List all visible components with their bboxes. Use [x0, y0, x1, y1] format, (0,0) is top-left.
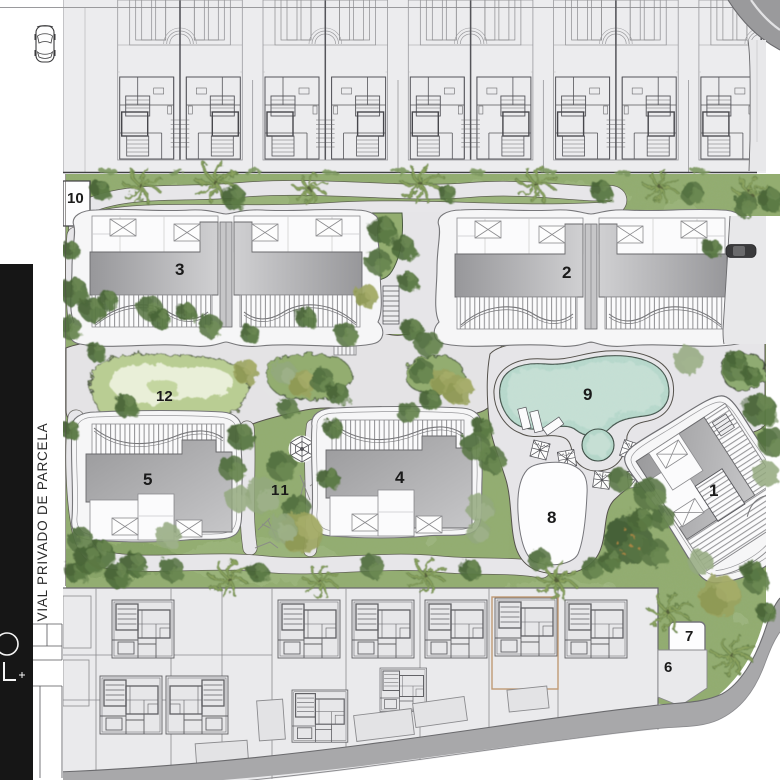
svg-text:4: 4	[395, 468, 405, 487]
svg-text:6: 6	[664, 659, 672, 676]
svg-text:2: 2	[562, 263, 571, 282]
svg-text:7: 7	[685, 628, 693, 645]
svg-text:3: 3	[175, 260, 184, 279]
svg-text:VIAL PRIVADO DE PARCELA: VIAL PRIVADO DE PARCELA	[35, 423, 50, 622]
svg-text:10: 10	[67, 190, 84, 207]
svg-text:12: 12	[156, 388, 173, 405]
svg-text:11: 11	[271, 482, 291, 499]
svg-text:8: 8	[547, 508, 556, 527]
svg-text:1: 1	[709, 481, 718, 500]
svg-text:5: 5	[143, 470, 152, 489]
svg-text:9: 9	[583, 385, 592, 404]
